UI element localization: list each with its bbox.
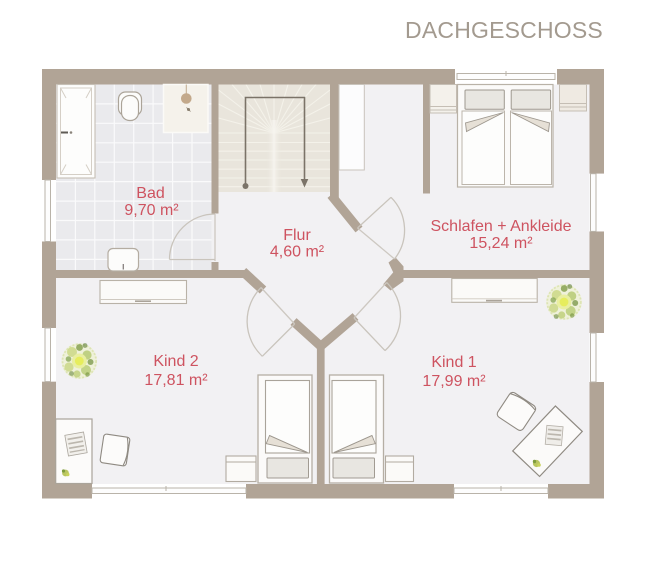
svg-text:Flur: Flur	[283, 227, 311, 244]
svg-text:Kind 1: Kind 1	[431, 354, 476, 371]
svg-text:4,60 m²: 4,60 m²	[270, 244, 325, 261]
svg-text:9,70 m²: 9,70 m²	[124, 202, 179, 219]
svg-text:15,24 m²: 15,24 m²	[469, 235, 533, 252]
svg-text:Bad: Bad	[136, 185, 164, 202]
svg-text:DACHGESCHOSS: DACHGESCHOSS	[405, 17, 603, 43]
svg-text:17,99 m²: 17,99 m²	[422, 373, 486, 390]
svg-text:Schlafen + Ankleide: Schlafen + Ankleide	[431, 218, 572, 235]
svg-text:Kind 2: Kind 2	[153, 353, 198, 370]
svg-text:17,81 m²: 17,81 m²	[144, 372, 208, 389]
